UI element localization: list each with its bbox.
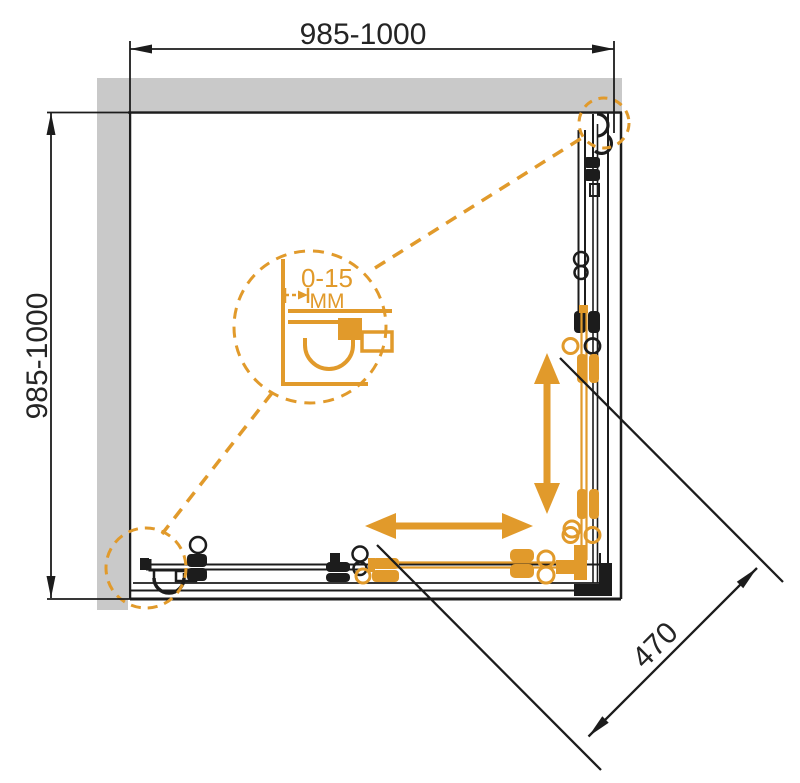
roller-body xyxy=(588,311,600,333)
roller-body xyxy=(510,564,534,578)
roller-body xyxy=(187,568,207,581)
dim-arrow xyxy=(47,576,56,598)
door-stopper-arc xyxy=(597,114,608,136)
roller-body xyxy=(187,554,207,567)
wall-left xyxy=(97,78,128,610)
roller-body xyxy=(584,169,600,181)
arrow-head-left xyxy=(365,513,396,539)
roller-body xyxy=(589,354,599,383)
dimension-diagonal-label: 470 xyxy=(626,616,685,675)
arrow-head-down xyxy=(534,483,560,514)
dim-arrow xyxy=(47,113,56,135)
dim-arrow xyxy=(592,45,614,54)
technical-drawing-canvas: 0-15 MM 985-1000 985-1000 470 xyxy=(0,0,800,783)
glass-holder-tube xyxy=(362,332,392,351)
callout-leader-bottom xyxy=(162,393,272,534)
roller-body xyxy=(510,549,534,562)
roller-body xyxy=(589,489,599,519)
roller-body xyxy=(326,562,350,572)
roller-body xyxy=(577,489,587,519)
dimension-top: 985-1000 xyxy=(130,18,614,133)
profile-block xyxy=(338,318,362,340)
roller-body xyxy=(372,570,399,582)
roller-body xyxy=(574,311,586,333)
door-corner-connector xyxy=(556,560,576,574)
extension-line xyxy=(377,545,601,770)
track-end-cap xyxy=(140,558,149,570)
arrow-head-up xyxy=(534,353,560,384)
slide-direction-arrows xyxy=(365,353,560,539)
shower-enclosure-diagram: 0-15 MM 985-1000 985-1000 470 xyxy=(0,0,800,783)
roller-body xyxy=(584,157,600,168)
roller-wheel xyxy=(353,547,368,562)
wall-top xyxy=(97,78,622,111)
dim-arrow xyxy=(130,45,152,54)
walls xyxy=(97,78,622,610)
roller-wheel xyxy=(563,339,578,354)
roller-mount xyxy=(330,553,340,563)
roller-wheel xyxy=(190,537,206,553)
glass-clamp-arc xyxy=(305,345,353,369)
dimension-top-label: 985-1000 xyxy=(300,18,427,51)
detail-range-label: 0-15 xyxy=(301,263,353,293)
callout-leader-top xyxy=(375,136,585,268)
roller-body xyxy=(326,573,350,582)
arrow-head-right xyxy=(502,513,533,539)
detail-unit-label: MM xyxy=(310,290,345,313)
dimension-left-label: 985-1000 xyxy=(21,293,54,420)
dimension-line xyxy=(589,568,758,737)
detail-callouts xyxy=(106,98,629,608)
roller-wheel xyxy=(538,567,554,583)
